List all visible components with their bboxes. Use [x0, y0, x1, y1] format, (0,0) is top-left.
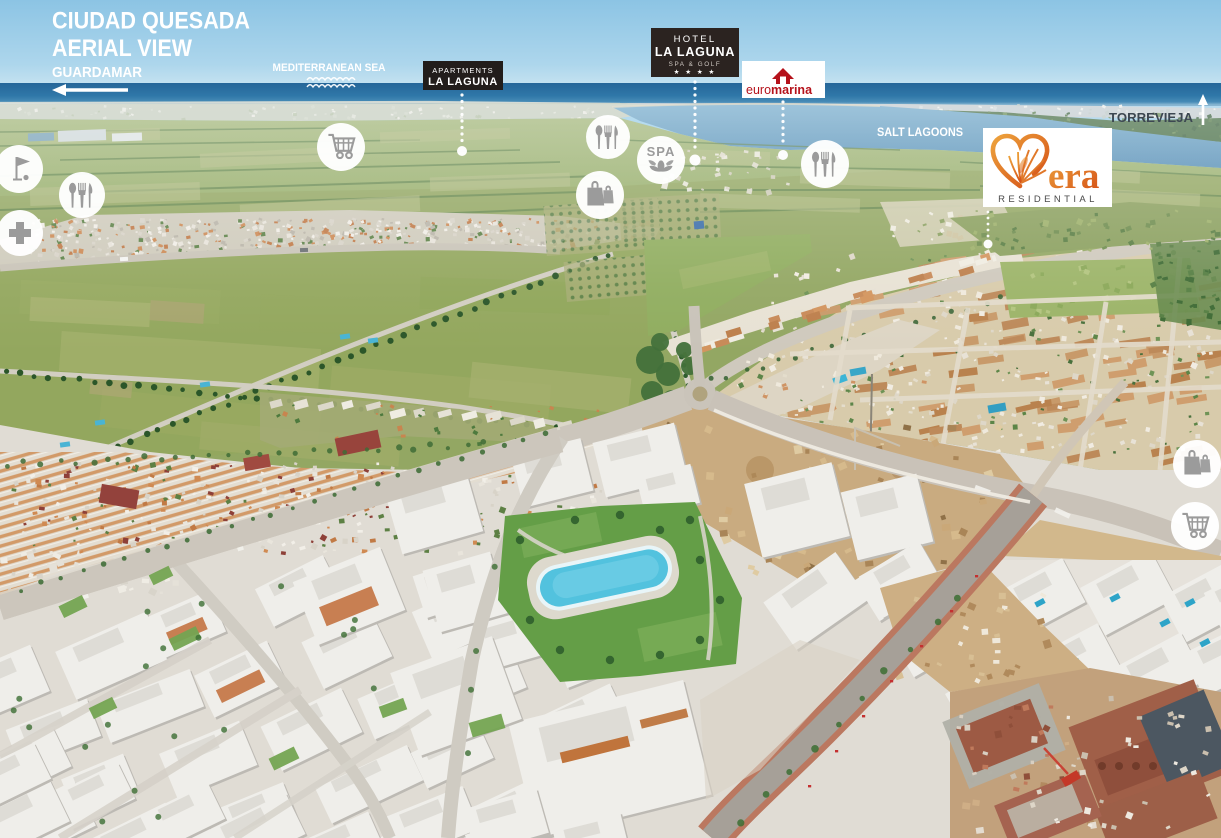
svg-text:AERIAL VIEW: AERIAL VIEW [52, 35, 192, 62]
svg-text:euromarina: euromarina [746, 83, 813, 97]
svg-text:HOTEL: HOTEL [674, 34, 717, 45]
svg-text:LA LAGUNA: LA LAGUNA [655, 45, 735, 59]
svg-text:★ ★ ★ ★: ★ ★ ★ ★ [674, 68, 717, 76]
svg-text:GUARDAMAR: GUARDAMAR [52, 65, 142, 81]
svg-text:TORREVIEJA: TORREVIEJA [1109, 111, 1193, 125]
svg-text:RESIDENTIAL: RESIDENTIAL [998, 194, 1098, 205]
svg-text:APARTMENTS: APARTMENTS [432, 66, 494, 75]
svg-text:CIUDAD QUESADA: CIUDAD QUESADA [52, 8, 250, 35]
svg-text:SALT LAGOONS: SALT LAGOONS [877, 127, 963, 139]
svg-text:LA LAGUNA: LA LAGUNA [428, 76, 498, 88]
svg-text:MEDITERRANEAN SEA: MEDITERRANEAN SEA [273, 62, 386, 74]
svg-text:SPA & GOLF: SPA & GOLF [669, 61, 722, 68]
svg-text:era: era [1048, 156, 1099, 197]
svg-text:SPA: SPA [647, 144, 676, 159]
